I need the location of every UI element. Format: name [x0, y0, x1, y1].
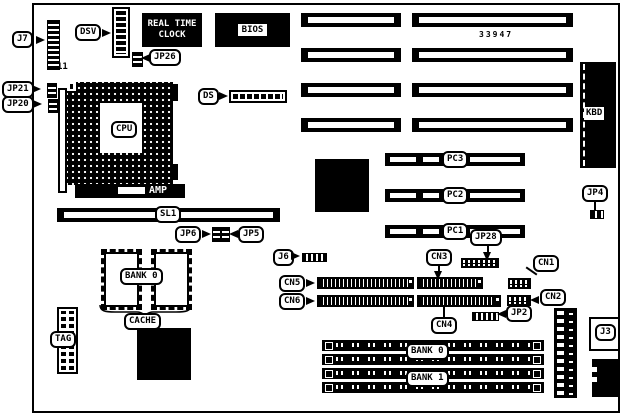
- isa-slot-4-right: [412, 118, 573, 132]
- motherboard-diagram: 11 J7 DSV REAL TIME CLOCK BIOS JP26 JP21…: [0, 0, 622, 415]
- jp5-pointer-icon: [229, 230, 238, 238]
- jp26-pointer-icon: [141, 54, 150, 62]
- isa-slot-3-left: [301, 83, 401, 97]
- isa-slot-4-left: [301, 118, 401, 132]
- edge-connector-notch-1: [592, 367, 597, 372]
- jp28-pointer-icon: [483, 252, 491, 261]
- amp-label: AMP: [149, 185, 167, 197]
- isa-slot-2-left: [301, 48, 401, 62]
- j6-pointer-icon: [291, 252, 300, 260]
- board-part-number: 33947: [479, 30, 513, 40]
- j3-label: J3: [595, 324, 616, 341]
- chipset-qfp-2: [137, 328, 191, 380]
- cn6-connector: [317, 295, 414, 307]
- chipset-qfp-1: [315, 159, 369, 212]
- cn5-pointer-icon: [306, 279, 315, 287]
- edge-connector-notch-2: [592, 377, 597, 382]
- jp2-label: JP2: [506, 305, 532, 322]
- dsv-pointer-icon: [102, 29, 111, 37]
- tag-label: TAG: [50, 331, 76, 348]
- j6-pin-header: [302, 253, 327, 262]
- jp6-pointer-icon: [202, 230, 211, 238]
- bios-chip: BIOS: [215, 13, 290, 47]
- jp21-jumper: [47, 83, 57, 98]
- cn3-connector: [417, 277, 483, 289]
- jp26-label: JP26: [149, 49, 181, 66]
- cn5-connector: [317, 277, 414, 289]
- cn4-connector: [417, 295, 501, 307]
- cache-bank0-label: BANK 0: [120, 268, 163, 285]
- jp4-label: JP4: [582, 185, 608, 202]
- cpu-label: CPU: [111, 121, 137, 138]
- cn3-label: CN3: [426, 249, 452, 266]
- jp6-label: JP6: [175, 226, 201, 243]
- cn6-label: CN6: [279, 293, 305, 310]
- ds-connector: [229, 90, 287, 103]
- cn2-pointer-icon: [530, 296, 539, 304]
- j7-label: J7: [12, 31, 33, 48]
- isa-slot-3-right: [412, 83, 573, 97]
- ds-label: DS: [198, 88, 219, 105]
- jp5-label: JP5: [238, 226, 264, 243]
- jp20-pointer-icon: [33, 100, 42, 108]
- pc1-label: PC1: [442, 223, 468, 240]
- cn3-pointer-icon: [434, 271, 442, 280]
- jp6-jumper: [212, 227, 221, 242]
- j7-pointer-icon: [36, 36, 45, 44]
- cn4-label: CN4: [431, 317, 457, 334]
- simm-bank1-label: BANK 1: [406, 370, 449, 387]
- cpu-socket-pin1: [70, 84, 73, 89]
- dsv-label: DSV: [75, 24, 101, 41]
- cn6-pointer-icon: [306, 297, 315, 305]
- cpu-side-bar: [58, 88, 67, 193]
- dsv-header: [112, 7, 130, 58]
- jp20-label: JP20: [2, 96, 34, 113]
- jp21-pointer-icon: [32, 85, 41, 93]
- amp-socket-slot: [118, 187, 145, 194]
- pc3-label: PC3: [442, 151, 468, 168]
- ds-pointer-icon: [219, 92, 228, 100]
- cn1-label: CN1: [533, 255, 559, 272]
- cn2-label: CN2: [540, 289, 566, 306]
- isa-slot-1-left: [301, 13, 401, 27]
- cpu-socket-tab-top: [173, 84, 178, 101]
- jp28-label: JP28: [470, 229, 502, 246]
- cn1-pin-header: [508, 278, 531, 289]
- pc2-label: PC2: [442, 187, 468, 204]
- jp28-pin-header: [461, 258, 499, 268]
- rtc-label-line1: REAL TIME: [148, 19, 197, 30]
- isa-slot-1-right: [412, 13, 573, 27]
- jp20-jumper: [48, 99, 58, 113]
- jp4-jumper: [590, 210, 604, 219]
- bios-label: BIOS: [238, 24, 268, 36]
- jp2-pin-header: [472, 312, 499, 321]
- cn5-label: CN5: [279, 275, 305, 292]
- sl1-label: SL1: [155, 206, 181, 223]
- rtc-label-line2: CLOCK: [158, 30, 185, 41]
- isa-slot-2-right: [412, 48, 573, 62]
- jp2-pointer-icon: [497, 310, 506, 318]
- real-time-clock-chip: REAL TIME CLOCK: [142, 13, 202, 47]
- power-connector: [554, 308, 577, 398]
- pin11-text: 11: [57, 62, 68, 72]
- cache-label: CACHE: [124, 313, 161, 330]
- simm-bank0-label: BANK 0: [406, 343, 449, 360]
- kbd-label: KBD: [584, 107, 604, 120]
- cpu-socket-tab-bottom: [173, 164, 178, 180]
